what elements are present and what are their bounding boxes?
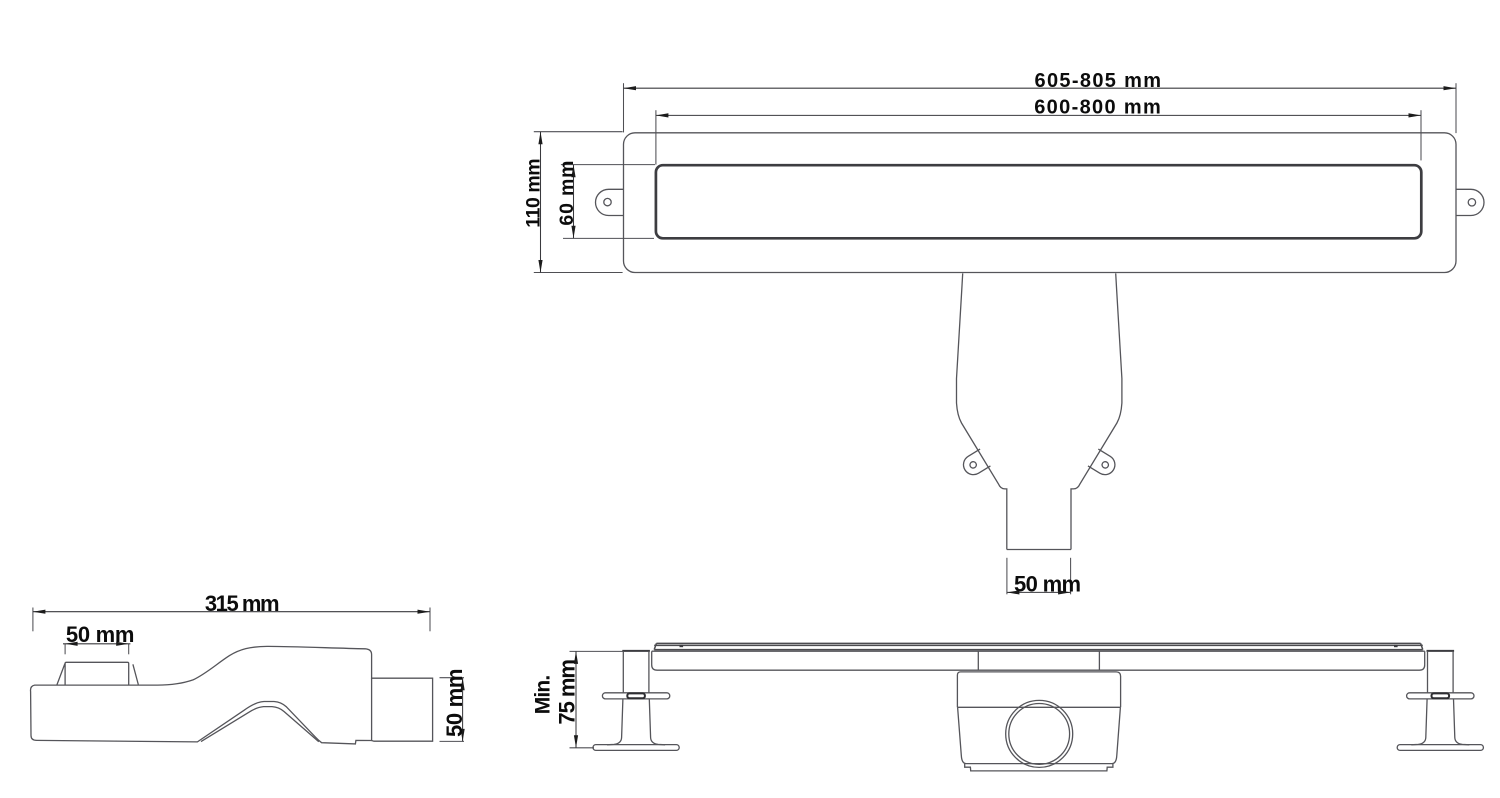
- svg-text:315 mm: 315 mm: [205, 591, 280, 616]
- svg-text:110 mm: 110 mm: [523, 158, 545, 227]
- svg-text:50 mm: 50 mm: [1014, 572, 1081, 597]
- svg-text:75 mm: 75 mm: [554, 659, 579, 725]
- svg-text:50 mm: 50 mm: [66, 622, 134, 647]
- svg-text:60 mm: 60 mm: [556, 161, 578, 226]
- svg-text:Min.: Min.: [531, 675, 554, 715]
- svg-text:50 mm: 50 mm: [442, 669, 467, 738]
